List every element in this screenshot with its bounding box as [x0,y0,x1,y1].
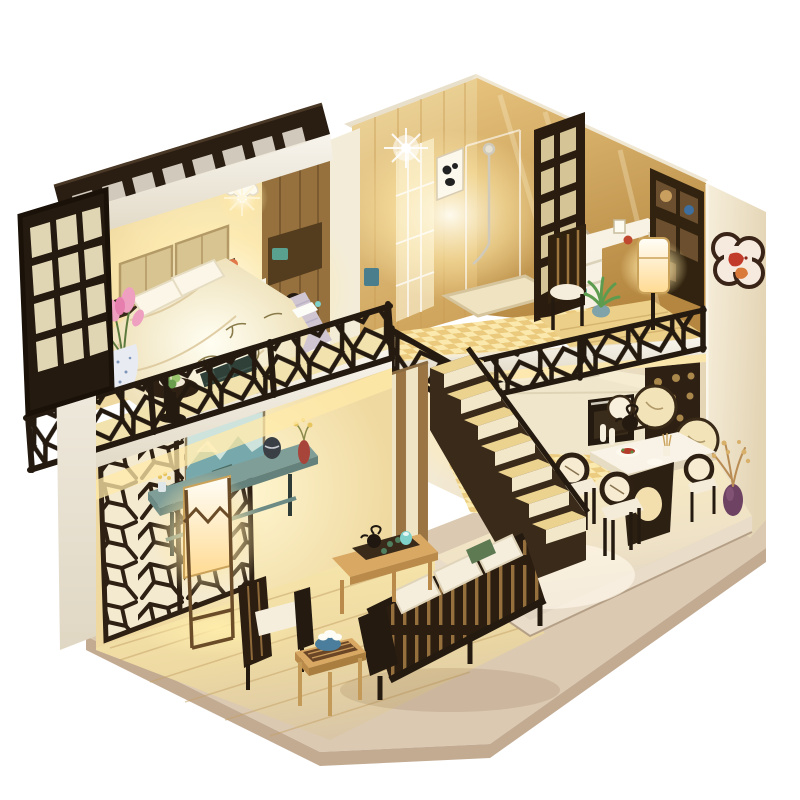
red-toy [624,236,633,245]
teapot [367,534,381,548]
dollhouse-photo: Miniature DIY dollhouse diorama [0,0,800,800]
laundry-bin [364,268,379,286]
teal-towel [272,248,288,260]
photo-stage: Miniature DIY dollhouse diorama [0,0,800,800]
photo-frame [614,220,625,233]
panda-wall-art [437,148,463,200]
side-plate [647,459,663,466]
gourd-vase [660,190,672,202]
window-shutter [20,190,112,414]
blue-jar [684,205,694,215]
glass-shower-door [396,138,434,322]
koi-quatrefoil-plaque [713,234,763,287]
